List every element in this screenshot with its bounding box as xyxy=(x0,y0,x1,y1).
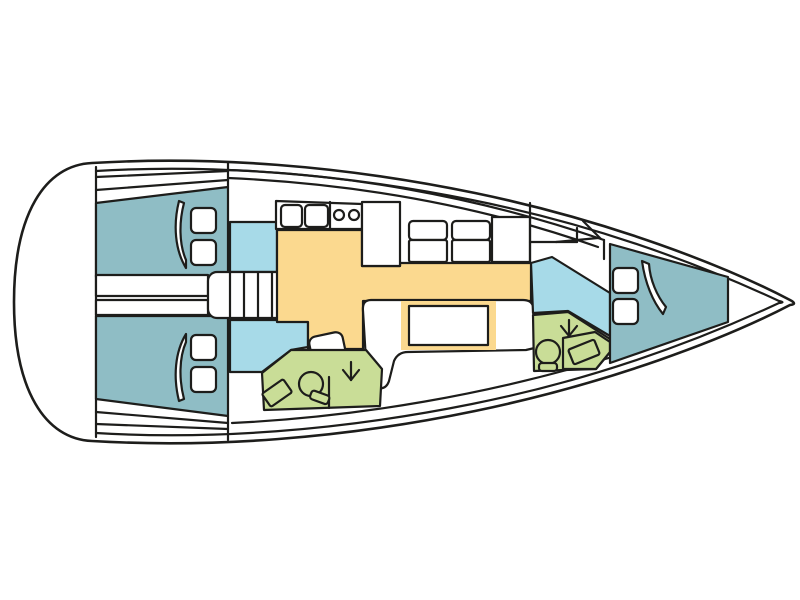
seat-backrest xyxy=(452,221,490,240)
seat-cushion xyxy=(409,240,447,262)
pillow xyxy=(191,240,216,265)
aft-cabin-port xyxy=(96,187,228,277)
aft-cabin-starboard xyxy=(96,316,228,416)
pillow xyxy=(191,367,216,392)
toilet-bowl xyxy=(536,340,560,364)
galley-sink xyxy=(305,205,328,227)
center-corridor xyxy=(96,275,208,315)
boat-layout-diagram xyxy=(0,0,800,600)
seat-cushion xyxy=(452,240,490,262)
corridor-bar-lower xyxy=(96,300,208,315)
galley-sink xyxy=(281,205,302,227)
pillow xyxy=(613,299,638,324)
saloon-table xyxy=(409,306,488,345)
sailboat-floor-plan xyxy=(0,0,800,600)
aft-head xyxy=(262,350,382,410)
nav-table xyxy=(492,217,530,262)
pillow xyxy=(613,268,638,293)
pillow xyxy=(191,208,216,233)
pillow xyxy=(191,335,216,360)
fridge-column xyxy=(362,202,400,266)
corridor-bar-upper xyxy=(96,275,208,296)
toilet-base xyxy=(539,363,557,371)
seat-backrest xyxy=(409,221,447,240)
companionway-landing-upper xyxy=(230,222,277,272)
